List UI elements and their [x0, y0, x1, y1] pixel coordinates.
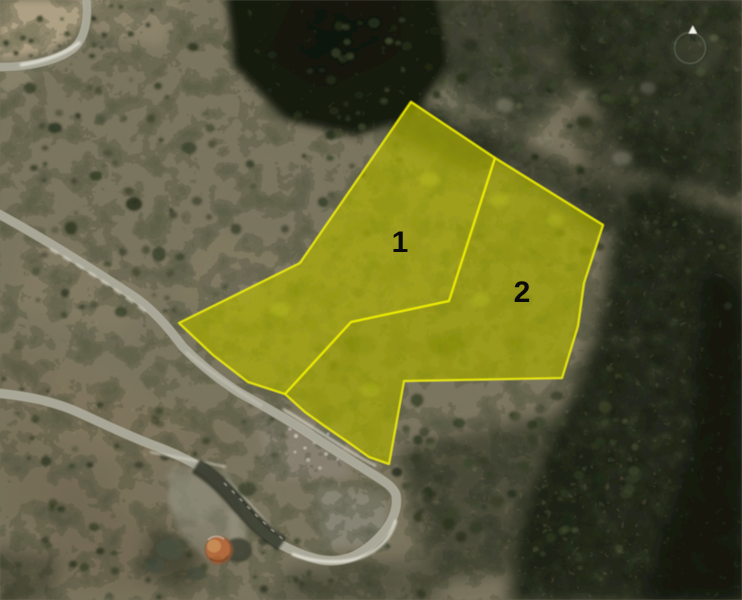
svg-text:1: 1	[392, 226, 409, 259]
svg-text:2: 2	[514, 276, 531, 309]
svg-text:N: N	[690, 35, 696, 44]
